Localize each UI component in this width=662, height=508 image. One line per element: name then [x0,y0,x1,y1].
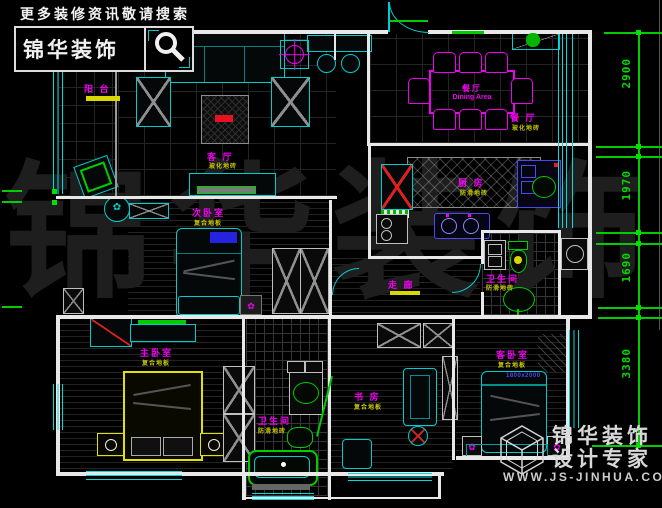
dimension-tick [52,200,57,205]
dimension-extension [604,32,662,34]
wall-foyer-left [334,34,336,60]
magnifier-cell [144,28,192,70]
dimension-value: 1690 [620,252,633,283]
wall-kitchen-bottom [368,256,484,259]
dimension-extension [598,317,662,319]
dining-chair [485,109,508,130]
bath1-floor-label: 防滑地砖 [486,283,514,292]
coffee-table-red-mark [215,115,233,122]
washing-machine [561,238,588,270]
bedroom2-cabinet [129,203,169,219]
pillow [210,232,237,243]
kitchen-cabinet [376,214,408,244]
plant-icon [526,33,540,47]
bathtub [248,450,318,486]
dimension-extension [2,306,22,308]
dimension-tick [636,230,641,235]
toilet-tank [508,241,528,250]
floor-drain-icon: ✿ [104,196,130,222]
study-floor-label: 复合地板 [354,402,382,411]
balcony-chair-seat [80,161,113,192]
master-window [53,384,63,430]
bed-size-label: 1800x2000 [506,373,541,379]
wall-utility-left [558,230,561,318]
flower-symbol: ✿ [247,301,255,311]
guest-floor-label: 复合地板 [498,360,526,369]
dining-chair [485,52,508,73]
wardrobe-panel [223,366,255,414]
dimension-extension [596,232,662,234]
corridor-label-bar [390,291,420,295]
entry-threshold [390,20,428,22]
wall-bedroom2-right [329,200,332,318]
brand-url-text: WWW.JS-JINHUA.COM [503,470,662,484]
coffee-table [201,95,249,144]
shaft-box [63,288,84,314]
kettle-icon [532,176,556,198]
floorplan-image: 更多装修资讯敬请搜索 锦华装饰 锦华装饰 [0,0,662,508]
study-bottom-window [348,473,432,481]
pillow [131,437,161,456]
wall-bath1-left-a [481,230,484,264]
kitchen-floor-label: 防滑地砖 [460,188,488,197]
wall-middle [56,315,592,319]
brand-tagline-text: 设计专家 [552,443,652,473]
kitchen-shaft [381,164,413,210]
guest-window [569,330,579,428]
toilet [510,250,527,273]
dimension-value: 3380 [620,348,633,379]
dimension-extension [596,243,662,245]
closet-box [377,323,421,348]
dining-chair [433,52,456,73]
closet-box [423,323,453,348]
dimension-tick [636,305,641,310]
wall-living-bottom [56,196,337,199]
search-hint-text: 更多装修资讯敬请搜索 [20,4,190,24]
wall-study-right [452,318,455,460]
balcony-label-bar [86,96,120,101]
master-bottom-window [86,471,182,480]
wardrobe-panel [300,248,329,314]
dimension-tick [52,189,57,194]
wardrobe-panel [272,248,301,314]
brand-logo-box: 锦华装饰 [14,26,194,72]
dining-chair [408,78,430,104]
dimension-extension [596,146,662,148]
wall-right-upper [588,30,592,318]
dining-table-label-en: Dining Area [452,94,491,101]
dining-chair [511,78,533,104]
ceiling-light-icon [280,40,309,69]
dining-table: 餐厅 Dining Area [429,70,515,114]
ceiling-fan-icon [408,426,428,446]
bath2-step-window [252,493,314,500]
bath1-cabinet [484,240,506,270]
dining-chair [459,109,482,130]
bedroom2-bed-bench [178,296,240,315]
master-dresser [90,318,132,347]
sofa-right [271,77,310,127]
wall-step-right [438,474,441,499]
dimension-tick [636,154,641,159]
study-sofa [403,368,437,426]
entry-stool [341,54,360,73]
dining-wall-sill [452,31,484,34]
tv-screen [197,186,256,194]
brand-cube-logo [497,424,547,476]
bedroom2-floor-label: 复合地板 [194,218,222,227]
nightstand [97,433,124,456]
dining-table-label-cn: 餐厅 [462,83,482,94]
wash-basin [293,382,319,404]
dining-floor-label: 玻化地砖 [512,123,540,132]
wall-kitchen-left [368,146,371,258]
study-chair [342,439,372,469]
dimension-extension [596,156,662,158]
nightstand: ✿ [240,295,262,315]
master-tv-screen [138,320,186,324]
wall-bath1-top [481,230,560,233]
entry-console [307,35,372,52]
entry-door-arc [389,2,429,33]
east-bay-window-line [572,34,573,228]
search-icon [148,28,190,66]
corridor-label: 走 廊 [388,278,415,291]
master-tv-cabinet [130,324,196,342]
master-bed [123,371,203,461]
dimension-tick [636,241,641,246]
dimension-extension [2,190,22,192]
dimension-value: 2900 [620,58,633,89]
wardrobe-panel [442,356,458,420]
dimension-tick [636,30,641,35]
bathtub-platform [252,484,310,490]
sofa-left [136,77,171,127]
master-floor-label: 复合地板 [142,358,170,367]
east-bay-window [558,34,567,228]
brand-logo-text: 锦华装饰 [16,34,144,64]
dimension-value: 1970 [620,170,633,201]
balcony-label: 阳 台 [84,82,111,95]
image-edge-line [659,0,660,330]
dimension-line [638,33,640,446]
dimension-extension [2,201,22,203]
dining-chair [433,109,456,130]
dining-chair [459,52,482,73]
dimension-tick [636,315,641,320]
toilet [287,427,313,448]
living-floor-label: 玻化地砖 [209,161,237,170]
dimension-extension [598,307,662,309]
dimension-tick [636,144,641,149]
pillow [163,437,193,456]
bath2-floor-label: 防滑地砖 [258,426,286,435]
wall-foyer-right [367,34,370,146]
guest-hatch-area [538,334,566,372]
